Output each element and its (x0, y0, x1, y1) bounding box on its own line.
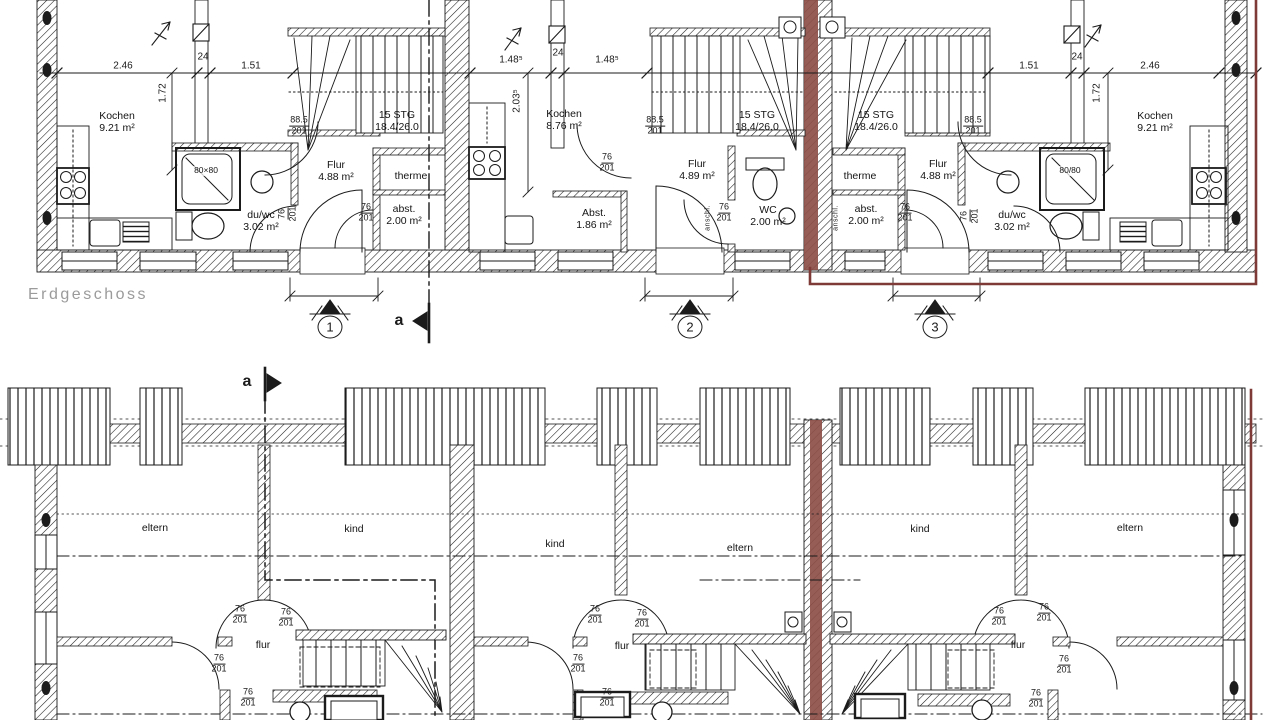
door-height: 201 (289, 206, 299, 221)
room-label-kochen-3: Kochen 9.21 m² (1137, 110, 1173, 134)
room-label-abst-2: Abst. 1.86 m² (576, 207, 612, 231)
door-size-label: 76201 (599, 688, 614, 709)
door-size-label: 76201 (716, 203, 731, 224)
floor-plan-drawing: Erdgeschoss Kochen 9.21 m² du/wc 3.02 m²… (0, 0, 1280, 720)
door-size-label: 76201 (960, 208, 981, 223)
room-label-eltern: eltern (1117, 522, 1143, 534)
door-size-label: 76201 (897, 203, 912, 224)
dimension-label: 1.48⁵ (499, 55, 523, 66)
door-size-label: 76201 (211, 654, 226, 675)
shower-size-label-3: 80/80 (1058, 166, 1081, 176)
room-label-eltern: eltern (142, 522, 168, 534)
shower-size-label-1: 80×80 (193, 166, 219, 176)
room-label-duwc-3: du/wc 3.02 m² (994, 209, 1030, 233)
door-size-label: 76201 (587, 605, 602, 626)
section-marker-a-lower: a (243, 373, 252, 391)
plan-labels: Erdgeschoss Kochen 9.21 m² du/wc 3.02 m²… (0, 0, 1280, 720)
door-size-label: 88.5201 (289, 116, 309, 137)
room-label-kind: kind (545, 538, 564, 550)
dimension-label-vertical: 1.72 (158, 83, 169, 102)
door-size-label: 76201 (1056, 655, 1071, 676)
door-height: 201 (570, 665, 585, 675)
room-label-abst-3: abst. 2.00 m² (848, 203, 884, 227)
door-height: 201 (240, 699, 255, 709)
room-label-therme-1: therme (395, 170, 428, 182)
door-size-label: 76201 (1028, 689, 1043, 710)
door-height: 201 (634, 620, 649, 630)
dimension-label: 24 (552, 48, 563, 59)
room-label-eltern: eltern (727, 542, 753, 554)
door-height: 201 (599, 699, 614, 709)
door-size-label: 76201 (570, 654, 585, 675)
stair-note-3: 15 STG 18.4/26.0 (854, 109, 898, 133)
dimension-label: 2.46 (1140, 61, 1159, 72)
utility-note: anschl. (705, 205, 712, 231)
entrance-marker-3: 3 (923, 316, 948, 339)
door-height: 201 (278, 619, 293, 629)
door-size-label: 76201 (358, 203, 373, 224)
door-size-label: 76201 (278, 206, 299, 221)
dimension-label: 2.46 (113, 61, 132, 72)
door-size-label: 88.5201 (963, 116, 983, 137)
room-label-kind: kind (910, 523, 929, 535)
door-height: 201 (1028, 700, 1043, 710)
stair-note-1: 15 STG 18.4/26.0 (375, 109, 419, 133)
door-height: 201 (897, 214, 912, 224)
door-height: 201 (965, 127, 980, 137)
door-size-label: 76201 (232, 605, 247, 626)
door-size-label: 76201 (634, 609, 649, 630)
utility-note: anschl. (833, 205, 840, 231)
room-label-kind: kind (344, 523, 363, 535)
door-height: 201 (291, 127, 306, 137)
door-size-label: 76201 (599, 153, 614, 174)
dimension-label-vertical: 2.03⁵ (512, 89, 523, 113)
door-height: 201 (599, 164, 614, 174)
room-label-abst-1: abst. 2.00 m² (386, 203, 422, 227)
dimension-label: 1.48⁵ (595, 55, 619, 66)
room-label-flur: flur (1011, 639, 1026, 651)
door-height: 201 (1036, 614, 1051, 624)
door-height: 201 (211, 665, 226, 675)
door-height: 201 (716, 214, 731, 224)
room-label-wc-2: WC 2.00 m² (750, 204, 786, 228)
door-size-label: 76201 (1036, 603, 1051, 624)
room-label-therme-3: therme (844, 170, 877, 182)
door-height: 201 (991, 618, 1006, 628)
door-size-label: 76201 (240, 688, 255, 709)
room-label-duwc-1: du/wc 3.02 m² (243, 209, 279, 233)
room-label-flur-2: Flur 4.89 m² (679, 158, 715, 182)
room-label-flur-3: Flur 4.88 m² (920, 158, 956, 182)
dimension-label: 24 (1071, 52, 1082, 63)
dimension-label: 1.51 (241, 61, 260, 72)
dimension-label-vertical: 1.72 (1092, 83, 1103, 102)
stair-note-2: 15 STG 18.4/26.0 (735, 109, 779, 133)
entrance-marker-1: 1 (318, 316, 343, 339)
door-height: 201 (358, 214, 373, 224)
door-size-label: 88.5201 (645, 116, 665, 137)
section-marker-a-upper: a (395, 312, 404, 330)
door-height: 201 (232, 616, 247, 626)
door-height: 201 (1056, 666, 1071, 676)
dimension-label: 24 (197, 52, 208, 63)
room-label-flur: flur (615, 640, 630, 652)
door-size-label: 76201 (278, 608, 293, 629)
entrance-marker-2: 2 (678, 316, 703, 339)
dimension-label: 1.51 (1019, 61, 1038, 72)
door-size-label: 76201 (991, 607, 1006, 628)
floor-title: Erdgeschoss (28, 286, 148, 304)
room-label-kochen-1: Kochen 9.21 m² (99, 110, 135, 134)
door-height: 201 (971, 208, 981, 223)
room-label-flur-1: Flur 4.88 m² (318, 159, 354, 183)
door-height: 201 (647, 127, 662, 137)
room-label-kochen-2: Kochen 8.76 m² (546, 108, 582, 132)
room-label-flur: flur (256, 639, 271, 651)
door-height: 201 (587, 616, 602, 626)
